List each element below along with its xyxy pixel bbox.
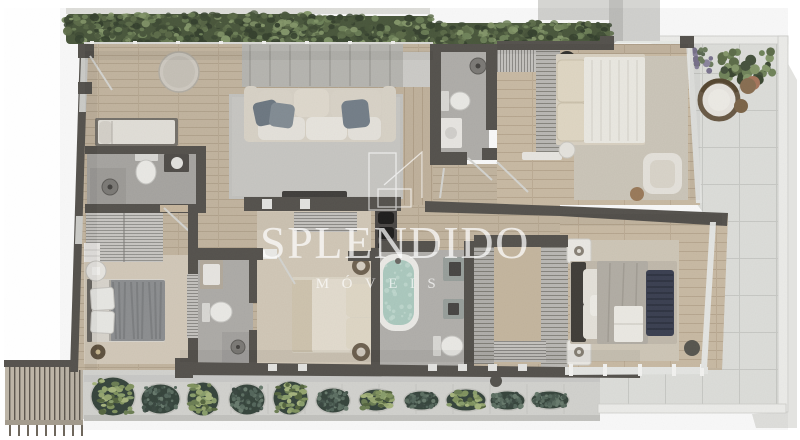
- svg-text:SPLENDIDO: SPLENDIDO: [260, 217, 530, 268]
- svg-text:MÓVEIS: MÓVEIS: [316, 275, 449, 292]
